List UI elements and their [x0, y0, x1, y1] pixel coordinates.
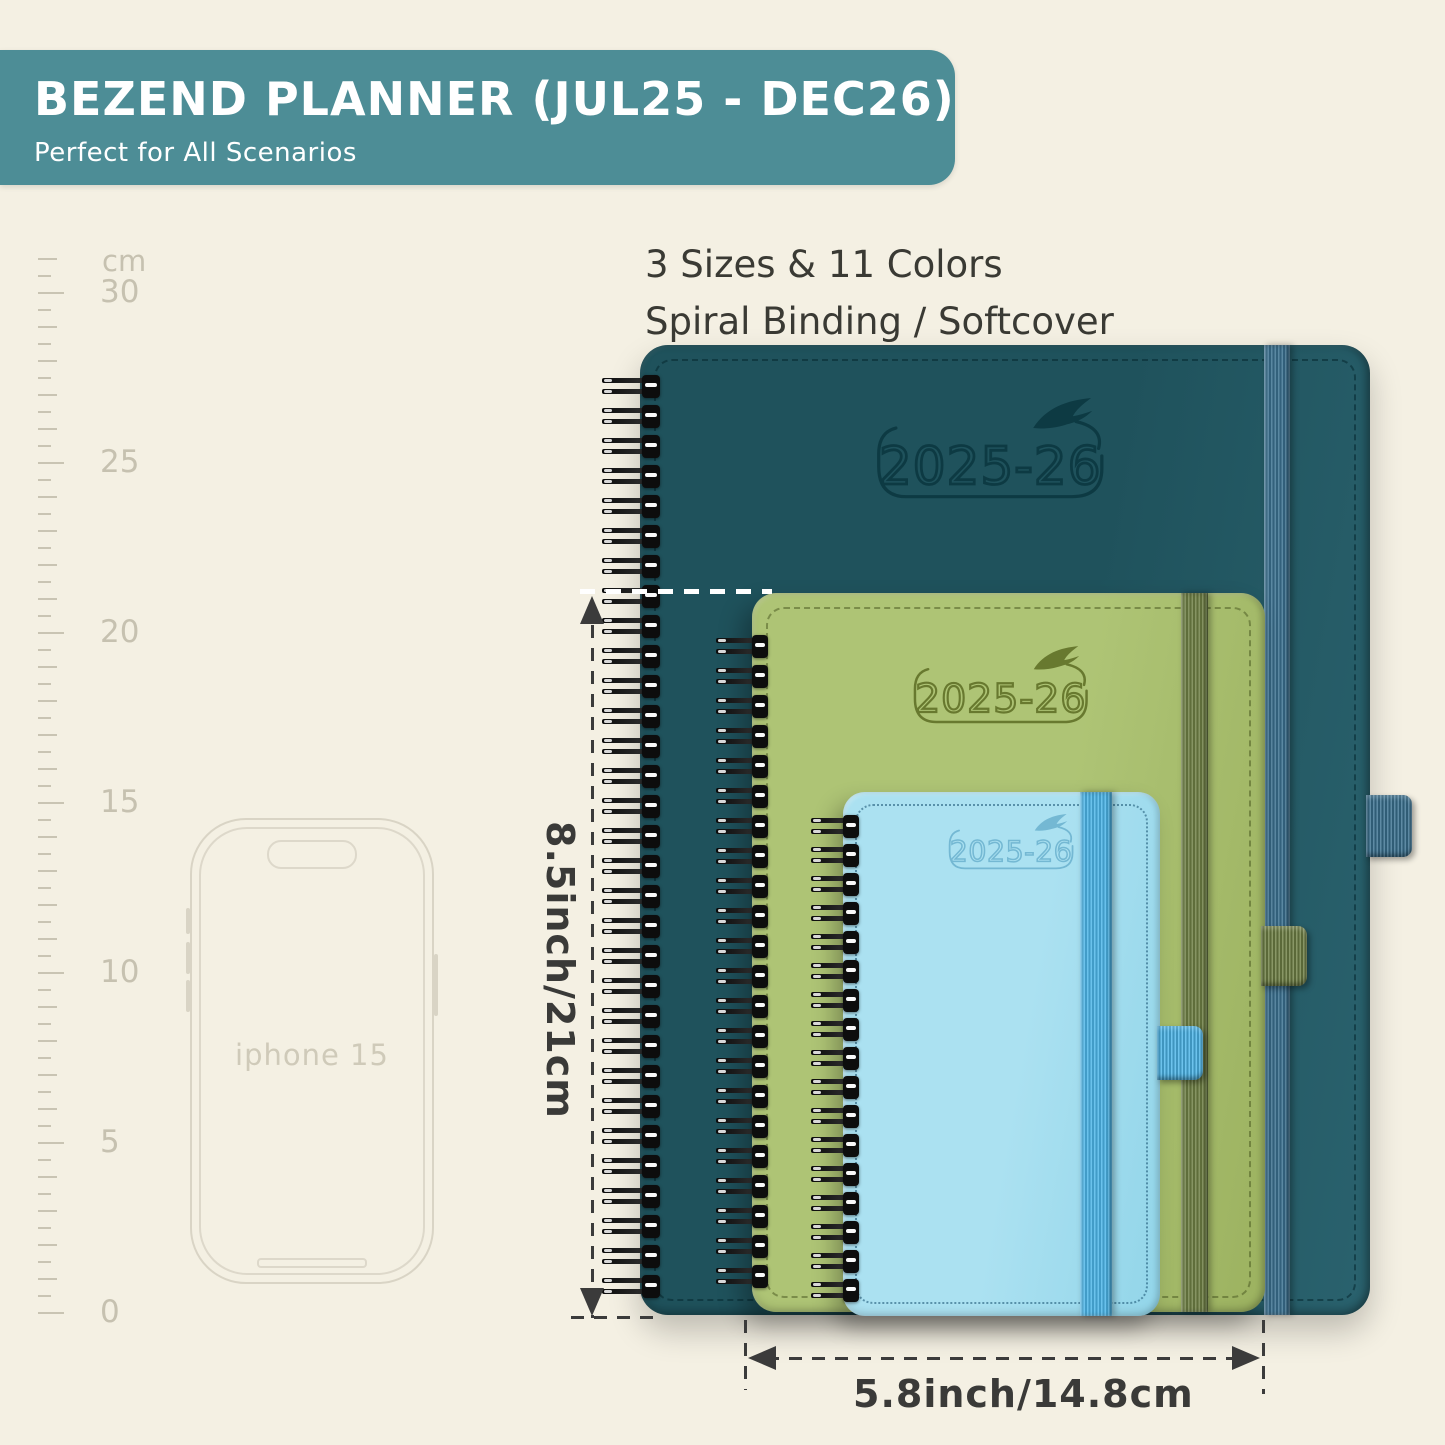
spiral-loop [602, 768, 672, 792]
width-left-guide-line [744, 1320, 747, 1390]
ruler-tick [38, 1040, 57, 1042]
ruler-tick [38, 309, 51, 311]
feather-icon [1034, 646, 1079, 669]
ruler-tick [38, 632, 64, 634]
spiral-loop [602, 498, 672, 522]
year-logo-medium: 2025-26 [910, 646, 1108, 737]
ruler-tick [38, 1125, 51, 1127]
headline-line2: Spiral Binding / Softcover [645, 293, 1114, 350]
spiral-loop [811, 963, 881, 987]
spiral-loop [811, 1166, 881, 1190]
pen-loop-large [1366, 795, 1412, 857]
spiral-loop [716, 1118, 786, 1142]
spiral-loop [716, 1028, 786, 1052]
year-text: 2025-26 [915, 676, 1086, 722]
ruler-tick-label: 5 [100, 1124, 120, 1160]
ruler-tick [38, 292, 64, 294]
spiral-loop [602, 1188, 672, 1212]
spiral-loop [811, 1021, 881, 1045]
ruler-tick [38, 1108, 57, 1110]
iphone-outline: iphone 15 [190, 818, 434, 1284]
height-top-guide-line [580, 589, 772, 594]
ruler-tick [38, 615, 51, 617]
spiral-loop [716, 758, 786, 782]
ruler-tick [38, 1176, 57, 1178]
spiral-loop [602, 918, 672, 942]
spiral-loop [811, 1079, 881, 1103]
spiral-loop [811, 1195, 881, 1219]
logo-swoosh [1058, 827, 1071, 842]
spiral-loop [602, 708, 672, 732]
ruler-tick [38, 972, 64, 974]
width-arrow-left [748, 1346, 776, 1370]
headline: 3 Sizes & 11 Colors Spiral Binding / Sof… [645, 236, 1114, 351]
iphone-speaker-line [257, 1258, 367, 1268]
iphone-power-button [434, 954, 438, 1016]
height-dimension-line [591, 602, 594, 1318]
ruler-tick [38, 1159, 51, 1161]
spiral-loop [811, 1253, 881, 1277]
ruler-tick [38, 1142, 64, 1144]
pen-loop-small [1157, 1026, 1203, 1080]
ruler-tick [38, 598, 57, 600]
spiral-loop [602, 1248, 672, 1272]
logo-bracket [915, 669, 1087, 722]
ruler-tick [38, 496, 57, 498]
spiral-loop [602, 558, 672, 582]
ruler-tick [38, 360, 57, 362]
spiral-loop [716, 698, 786, 722]
ruler-tick [38, 751, 51, 753]
spiral-loop [716, 638, 786, 662]
ruler-tick [38, 819, 51, 821]
spiral-loop [716, 1238, 786, 1262]
spiral-loop [811, 847, 881, 871]
feather-icon [1033, 398, 1092, 428]
ruler-tick [38, 1193, 51, 1195]
ruler-tick [38, 768, 57, 770]
ruler-tick [38, 666, 57, 668]
spiral-loop [716, 908, 786, 932]
spiral-loop [602, 1038, 672, 1062]
ruler-tick [38, 938, 57, 940]
ruler: cm 302520151050 [38, 244, 168, 1339]
spiral-loop [811, 1224, 881, 1248]
logo-swoosh [1076, 422, 1099, 449]
ruler-tick [38, 785, 51, 787]
banner-subtitle: Perfect for All Scenarios [34, 138, 955, 168]
spiral-loop [716, 998, 786, 1022]
spiral-loop [602, 738, 672, 762]
ruler-tick [38, 1091, 51, 1093]
elastic-band-large [1264, 345, 1290, 1315]
spiral-loop [602, 528, 672, 552]
ruler-tick [38, 1278, 57, 1280]
iphone-label: iphone 15 [192, 1038, 432, 1072]
ruler-tick [38, 547, 51, 549]
ruler-tick [38, 887, 51, 889]
ruler-tick [38, 700, 57, 702]
year-text: 2025-26 [879, 437, 1102, 497]
spiral-loop [811, 876, 881, 900]
ruler-tick [38, 377, 51, 379]
ruler-tick [38, 1312, 64, 1314]
spiral-loop [716, 1088, 786, 1112]
spiral-loop [602, 1128, 672, 1152]
logo-bracket [950, 831, 1073, 869]
ruler-tick-label: 10 [100, 954, 139, 990]
spiral-loop [602, 858, 672, 882]
spiral-loop [811, 1050, 881, 1074]
ruler-tick [38, 479, 51, 481]
ruler-tick [38, 1057, 51, 1059]
spiral-loop [716, 818, 786, 842]
ruler-tick-label: 20 [100, 614, 139, 650]
spiral-loop [716, 1148, 786, 1172]
ruler-tick [38, 683, 51, 685]
ruler-tick [38, 326, 57, 328]
ruler-tick [38, 649, 51, 651]
ruler-tick [38, 870, 57, 872]
spiral-loop [602, 888, 672, 912]
width-dimension-label: 5.8inch/14.8cm [853, 1372, 1153, 1416]
ruler-tick [38, 989, 51, 991]
iphone-volume-up-button [186, 942, 190, 974]
spiral-loop [602, 1098, 672, 1122]
spiral-loop [716, 938, 786, 962]
spiral-loop [602, 378, 672, 402]
spiral-loop [602, 828, 672, 852]
ruler-tick [38, 275, 51, 277]
spiral-loop [602, 438, 672, 462]
spiral-loop [602, 468, 672, 492]
spiral-loop [811, 1137, 881, 1161]
ruler-tick [38, 836, 57, 838]
width-dimension-line [766, 1357, 1244, 1360]
ruler-tick [38, 1210, 57, 1212]
spiral-loop [602, 1278, 672, 1302]
ruler-tick [38, 802, 64, 804]
ruler-tick [38, 1023, 51, 1025]
ruler-tick [38, 921, 51, 923]
height-dimension-label: 8.5inch/21cm [538, 821, 582, 1085]
spiral-loop [716, 1178, 786, 1202]
height-arrow-up [580, 596, 604, 624]
stitching [654, 359, 1356, 1301]
spiral-loop [716, 788, 786, 812]
ruler-tick-label: 15 [100, 784, 139, 820]
spiral-loop [602, 588, 672, 612]
logo-swoosh [1067, 664, 1085, 685]
spiral-loop [716, 1208, 786, 1232]
banner: BEZEND PLANNER (JUL25 - DEC26) Perfect f… [0, 50, 955, 185]
product-image: BEZEND PLANNER (JUL25 - DEC26) Perfect f… [0, 0, 1445, 1445]
ruler-tick [38, 1227, 51, 1229]
ruler-unit-label: cm [102, 244, 146, 278]
logo-bracket [879, 428, 1102, 497]
spiral-loop [811, 818, 881, 842]
ruler-tick [38, 394, 57, 396]
ruler-tick [38, 513, 51, 515]
spiral-loop [602, 1218, 672, 1242]
stitching [855, 804, 1148, 1304]
ruler-tick [38, 734, 57, 736]
ruler-tick [38, 1074, 57, 1076]
spiral-loop [602, 648, 672, 672]
ruler-tick [38, 564, 57, 566]
spiral-loop [716, 848, 786, 872]
year-logo-small: 2025-26 [946, 814, 1088, 879]
spiral-loop [602, 408, 672, 432]
ruler-tick [38, 530, 57, 532]
ruler-tick [38, 258, 57, 260]
banner-title: BEZEND PLANNER (JUL25 - DEC26) [34, 72, 955, 126]
headline-line1: 3 Sizes & 11 Colors [645, 236, 1114, 293]
spiral-loop [716, 728, 786, 752]
height-bottom-guide-line [571, 1316, 653, 1319]
width-right-guide-line [1262, 1320, 1265, 1394]
ruler-tick [38, 1295, 51, 1297]
spiral-loop [602, 618, 672, 642]
width-arrow-right [1232, 1346, 1260, 1370]
year-logo-large: 2025-26 [872, 398, 1130, 516]
feather-icon [1035, 814, 1068, 831]
elastic-band-small [1080, 792, 1112, 1316]
ruler-tick [38, 411, 51, 413]
ruler-tick [38, 343, 51, 345]
ruler-tick [38, 462, 64, 464]
spiral-loop [811, 934, 881, 958]
spiral-loop [716, 668, 786, 692]
ruler-tick [38, 428, 57, 430]
ruler-tick [38, 955, 51, 957]
ruler-tick [38, 853, 51, 855]
spiral-loop [602, 1068, 672, 1092]
ruler-tick-label: 0 [100, 1294, 120, 1330]
spiral-loop [811, 1282, 881, 1306]
ruler-tick [38, 581, 51, 583]
spiral-loop [602, 978, 672, 1002]
ruler-tick [38, 1006, 57, 1008]
spiral-loop [716, 878, 786, 902]
spiral-loop [811, 1108, 881, 1132]
spiral-loop [811, 905, 881, 929]
ruler-tick [38, 904, 57, 906]
elastic-band-medium [1181, 593, 1208, 1312]
iphone-volume-down-button [186, 980, 190, 1012]
year-text: 2025-26 [950, 835, 1073, 868]
spiral-loop [602, 948, 672, 972]
spiral-loop [602, 1158, 672, 1182]
spiral-loop [716, 1058, 786, 1082]
ruler-tick [38, 717, 51, 719]
ruler-tick [38, 1261, 51, 1263]
spiral-loop [602, 1008, 672, 1032]
iphone-mute-button [186, 908, 190, 934]
ruler-tick [38, 445, 51, 447]
stitching [766, 607, 1251, 1298]
ruler-tick-label: 30 [100, 274, 139, 310]
spiral-loop [716, 968, 786, 992]
ruler-tick [38, 1244, 57, 1246]
pen-loop-medium [1261, 926, 1307, 986]
iphone-dynamic-island [267, 840, 357, 869]
spiral-loop [811, 992, 881, 1016]
ruler-tick-label: 25 [100, 444, 139, 480]
spiral-loop [602, 798, 672, 822]
planner-medium-cover [752, 593, 1265, 1312]
spiral-loop [716, 1268, 786, 1292]
spiral-loop [602, 678, 672, 702]
planner-small-cover [843, 792, 1160, 1316]
planner-large-cover [640, 345, 1370, 1315]
height-arrow-down [580, 1288, 604, 1316]
